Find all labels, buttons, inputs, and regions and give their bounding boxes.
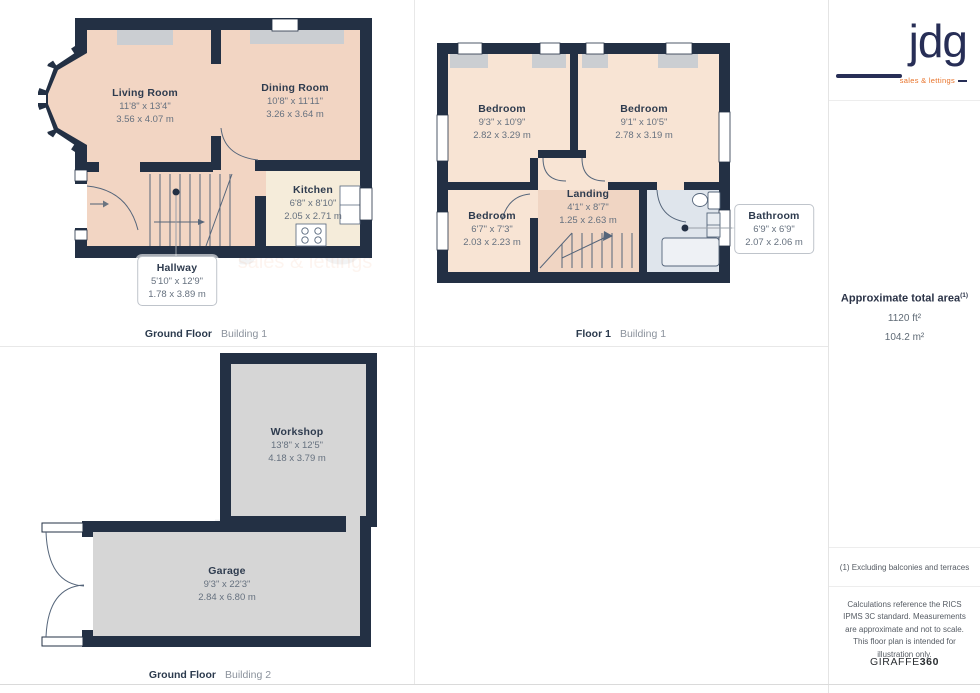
room-name: Bedroom	[473, 103, 531, 115]
room-label-workshop: Workshop 13'8" x 12'5" 4.18 x 3.79 m	[268, 426, 326, 464]
sink-icon	[707, 213, 720, 237]
callout-bathroom: Bathroom 6'9" x 6'9" 2.07 x 2.06 m	[734, 204, 814, 254]
room-dims-m: 2.84 x 6.80 m	[198, 592, 256, 603]
room-dims-ft: 6'9" x 6'9"	[745, 224, 803, 235]
floor-name: Ground Floor	[145, 328, 212, 340]
room-name: Workshop	[268, 426, 326, 438]
total-area-title-text: Approximate total area	[841, 293, 960, 305]
building-name: Building 1	[620, 328, 666, 340]
room-dims-ft: 9'3" x 22'3"	[198, 579, 256, 590]
room-name: Kitchen	[284, 184, 342, 196]
window	[75, 230, 87, 240]
caption-ground-floor-b1: Ground FloorBuilding 1	[145, 328, 267, 340]
brand-logo-block: jdg sales & lettings	[829, 0, 980, 101]
room-label-living-room: Living Room 11'8" x 13'4" 3.56 x 4.07 m	[112, 87, 178, 125]
room-label-landing: Landing 4'1" x 8'7" 1.25 x 2.63 m	[559, 188, 617, 226]
room-dims-ft: 9'1" x 10'5"	[615, 117, 673, 128]
callout-hallway: Hallway 5'10" x 12'9" 1.78 x 3.89 m	[137, 256, 217, 306]
window	[360, 188, 372, 220]
building-name: Building 2	[225, 669, 271, 681]
disclaimer-text: Calculations reference the RICS IPMS 3C …	[843, 600, 966, 659]
room-dims-m: 3.56 x 4.07 m	[112, 114, 178, 125]
room-name: Dining Room	[261, 82, 329, 94]
footnote-block: (1) Excluding balconies and terraces	[829, 547, 980, 587]
workshop-garage-opening	[346, 516, 360, 532]
room-dims-m: 1.78 x 3.89 m	[148, 289, 206, 300]
window	[75, 170, 87, 181]
floor-name: Floor 1	[576, 328, 611, 340]
room-dims-ft: 10'8" x 11'11"	[261, 96, 329, 107]
caption-floor1-b1: Floor 1Building 1	[576, 328, 666, 340]
room-label-dining-room: Dining Room 10'8" x 11'11" 3.26 x 3.64 m	[261, 82, 329, 120]
leader-dot	[682, 225, 689, 232]
room-name: Garage	[198, 565, 256, 577]
entry-door-opening	[75, 184, 87, 228]
provider-logo: GIRAFFE360	[829, 656, 980, 668]
counter-icon	[340, 186, 360, 224]
room-dims-m: 3.26 x 3.64 m	[261, 109, 329, 120]
room-name: Bedroom	[463, 210, 521, 222]
room-dims-m: 2.82 x 3.29 m	[473, 130, 531, 141]
room-dims-ft: 9'3" x 10'9"	[473, 117, 531, 128]
footnote-mark: (1)	[960, 292, 968, 299]
alcove	[250, 30, 344, 44]
disclaimer-block: Calculations reference the RICS IPMS 3C …	[829, 599, 980, 661]
floorplan-page: jdg sales & lettings	[0, 0, 980, 693]
room-label-kitchen: Kitchen 6'8" x 8'10" 2.05 x 2.71 m	[284, 184, 342, 222]
brand-tagline: sales & lettings	[900, 76, 967, 85]
tagline-dash	[958, 80, 967, 82]
info-sidebar: jdg sales & lettings Approximate total a…	[828, 0, 980, 693]
plan-floor1-building1: jdg	[412, 0, 828, 346]
provider-name: GIRAFFE	[870, 656, 920, 668]
total-area-m: 104.2 m²	[829, 332, 980, 343]
room-dims-ft: 13'8" x 12'5"	[268, 440, 326, 451]
alcove	[117, 30, 173, 45]
room-name: Bathroom	[745, 210, 803, 222]
room-name: Bedroom	[615, 103, 673, 115]
room-dims-ft: 4'1" x 8'7"	[559, 202, 617, 213]
leader-dot	[173, 189, 180, 196]
footnote-text: (1) Excluding balconies and terraces	[840, 563, 969, 572]
logo-rule	[836, 74, 902, 78]
hob-icon	[296, 224, 326, 246]
panel-divider-vertical	[414, 0, 415, 684]
window	[272, 19, 298, 31]
room-label-garage: Garage 9'3" x 22'3" 2.84 x 6.80 m	[198, 565, 256, 603]
brand-tagline-text: sales & lettings	[900, 76, 955, 85]
caption-ground-floor-b2: Ground FloorBuilding 2	[149, 669, 271, 681]
room-name: Landing	[559, 188, 617, 200]
page-bottom-rule	[0, 684, 980, 685]
room-name: Hallway	[148, 262, 206, 274]
building-name: Building 1	[221, 328, 267, 340]
room-dims-m: 2.78 x 3.19 m	[615, 130, 673, 141]
room-label-bedroom-1: Bedroom 9'3" x 10'9" 2.82 x 3.29 m	[473, 103, 531, 141]
room-dims-m: 1.25 x 2.63 m	[559, 215, 617, 226]
room-dims-ft: 11'8" x 13'4"	[112, 101, 178, 112]
room-dims-m: 2.07 x 2.06 m	[745, 237, 803, 248]
room-dims-ft: 5'10" x 12'9"	[148, 276, 206, 287]
floor-name: Ground Floor	[149, 669, 216, 681]
total-area-title: Approximate total area(1)	[829, 292, 980, 305]
panel-divider-horizontal	[0, 346, 828, 347]
brand-logo: jdg	[909, 18, 967, 64]
garage-door-opening	[82, 537, 93, 630]
room-label-bedroom-3: Bedroom 6'7" x 7'3" 2.03 x 2.23 m	[463, 210, 521, 248]
room-label-bedroom-2: Bedroom 9'1" x 10'5" 2.78 x 3.19 m	[615, 103, 673, 141]
room-name: Living Room	[112, 87, 178, 99]
bathtub-icon	[662, 238, 719, 266]
room-dims-m: 2.03 x 2.23 m	[463, 237, 521, 248]
room-dims-m: 4.18 x 3.79 m	[268, 453, 326, 464]
total-area-ft: 1120 ft²	[829, 313, 980, 324]
garage-doors	[42, 523, 84, 646]
room-dims-m: 2.05 x 2.71 m	[284, 211, 342, 222]
room-dims-ft: 6'8" x 8'10"	[284, 198, 342, 209]
plan-ground-floor-building2: jdg sales & lettings	[0, 347, 413, 693]
provider-suffix: 360	[920, 656, 939, 668]
total-area-block: Approximate total area(1) 1120 ft² 104.2…	[829, 292, 980, 343]
room-dims-ft: 6'7" x 7'3"	[463, 224, 521, 235]
